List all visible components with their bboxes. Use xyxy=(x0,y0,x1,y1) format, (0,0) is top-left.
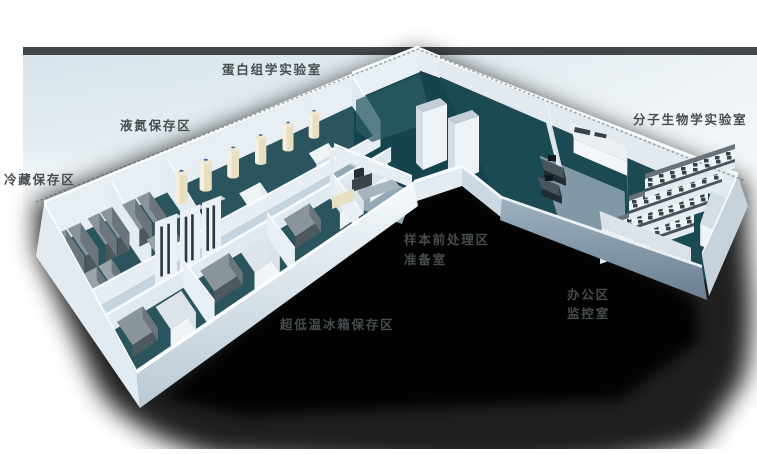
svg-text:超低温冰箱保存区: 超低温冰箱保存区 xyxy=(279,317,394,332)
svg-text:准备室: 准备室 xyxy=(404,252,447,267)
svg-text:分子生物学实验室: 分子生物学实验室 xyxy=(633,112,747,127)
svg-text:蛋白组学实验室: 蛋白组学实验室 xyxy=(222,62,322,77)
svg-text:冷藏保存区: 冷藏保存区 xyxy=(4,172,76,187)
svg-text:样本前处理区: 样本前处理区 xyxy=(404,232,490,247)
svg-text:液氮保存区: 液氮保存区 xyxy=(120,118,192,133)
svg-text:监控室: 监控室 xyxy=(567,306,610,321)
svg-text:办公区: 办公区 xyxy=(567,287,610,302)
